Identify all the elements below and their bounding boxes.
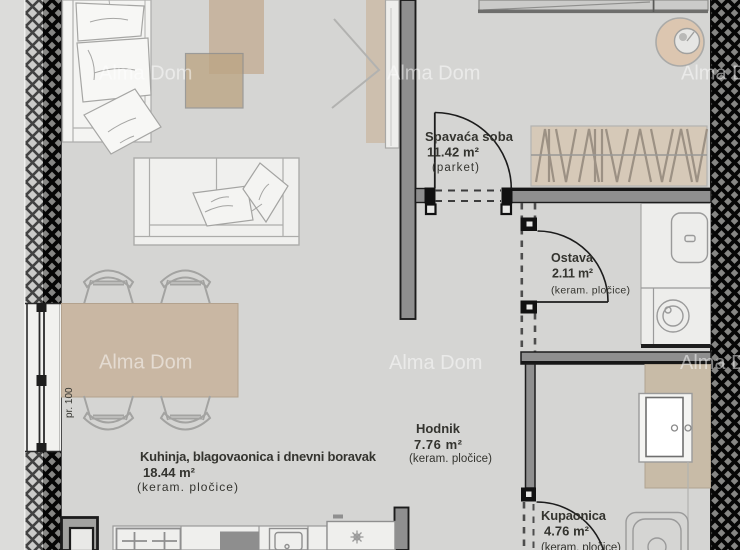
svg-text:11.42 m²: 11.42 m² xyxy=(427,145,480,160)
svg-text:Alma Dom: Alma Dom xyxy=(389,352,482,374)
svg-text:Spavaća soba: Spavaća soba xyxy=(425,129,514,144)
svg-text:Alma Dom: Alma Dom xyxy=(99,63,192,85)
svg-text:(parket): (parket) xyxy=(432,162,479,174)
svg-text:4.76 m²: 4.76 m² xyxy=(544,524,590,539)
svg-text:(keram. pločice): (keram. pločice) xyxy=(409,453,492,465)
svg-text:Kupaonica: Kupaonica xyxy=(541,508,607,523)
svg-text:Hodnik: Hodnik xyxy=(416,421,461,436)
svg-text:Kuhinja, blagovaonica i dnevni: Kuhinja, blagovaonica i dnevni boravak xyxy=(140,449,377,464)
svg-text:Alma Dom: Alma Dom xyxy=(680,352,740,374)
svg-text:Alma Dom: Alma Dom xyxy=(99,352,192,374)
svg-text:(keram. pločice): (keram. pločice) xyxy=(541,542,621,550)
svg-text:2.11 m²: 2.11 m² xyxy=(552,267,593,281)
svg-text:Alma Dom: Alma Dom xyxy=(387,63,480,85)
svg-text:18.44 m²: 18.44 m² xyxy=(143,465,196,480)
svg-text:pr. 100: pr. 100 xyxy=(64,387,75,418)
svg-text:Ostava: Ostava xyxy=(551,251,594,265)
svg-text:Alma Dom: Alma Dom xyxy=(681,63,740,85)
svg-text:7.76 m²: 7.76 m² xyxy=(414,437,463,452)
svg-text:(keram. pločice): (keram. pločice) xyxy=(137,480,238,494)
svg-text:(keram. pločice): (keram. pločice) xyxy=(551,285,630,297)
